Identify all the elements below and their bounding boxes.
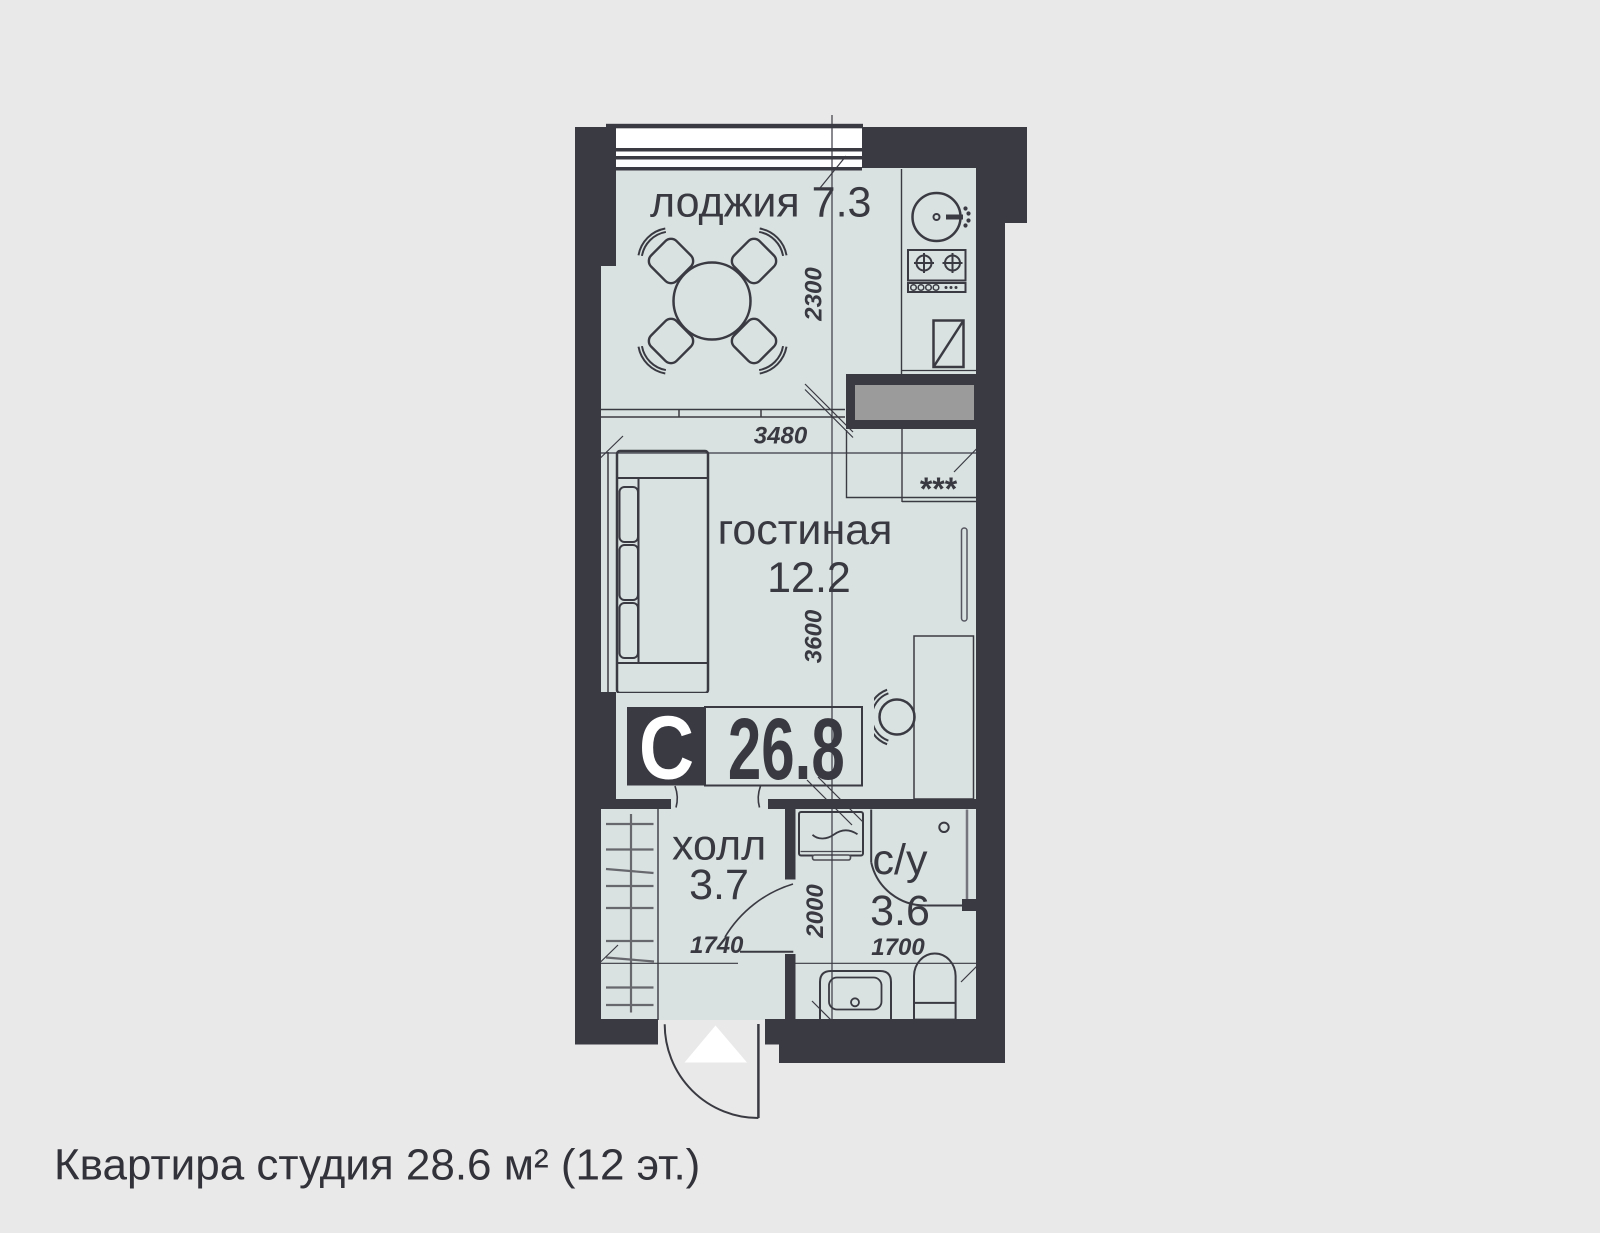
svg-text:2000: 2000 [802, 884, 829, 939]
svg-text:3.7: 3.7 [689, 861, 749, 909]
svg-text:1700: 1700 [871, 934, 925, 961]
svg-text:***: *** [920, 471, 958, 507]
svg-text:2300: 2300 [801, 267, 828, 322]
svg-text:Квартира студия 28.6 м² (12 эт: Квартира студия 28.6 м² (12 эт.) [54, 1141, 700, 1190]
svg-text:1740: 1740 [690, 932, 744, 959]
svg-text:26.8: 26.8 [728, 700, 845, 798]
svg-text:лоджия 7.3: лоджия 7.3 [650, 179, 871, 227]
svg-text:с/у: с/у [873, 836, 928, 884]
svg-text:3.6: 3.6 [870, 887, 930, 935]
svg-text:12.2: 12.2 [767, 554, 851, 602]
svg-text:гостиная: гостиная [718, 506, 893, 554]
svg-text:3480: 3480 [754, 423, 808, 450]
svg-text:3600: 3600 [801, 609, 828, 663]
svg-text:С: С [639, 697, 694, 798]
